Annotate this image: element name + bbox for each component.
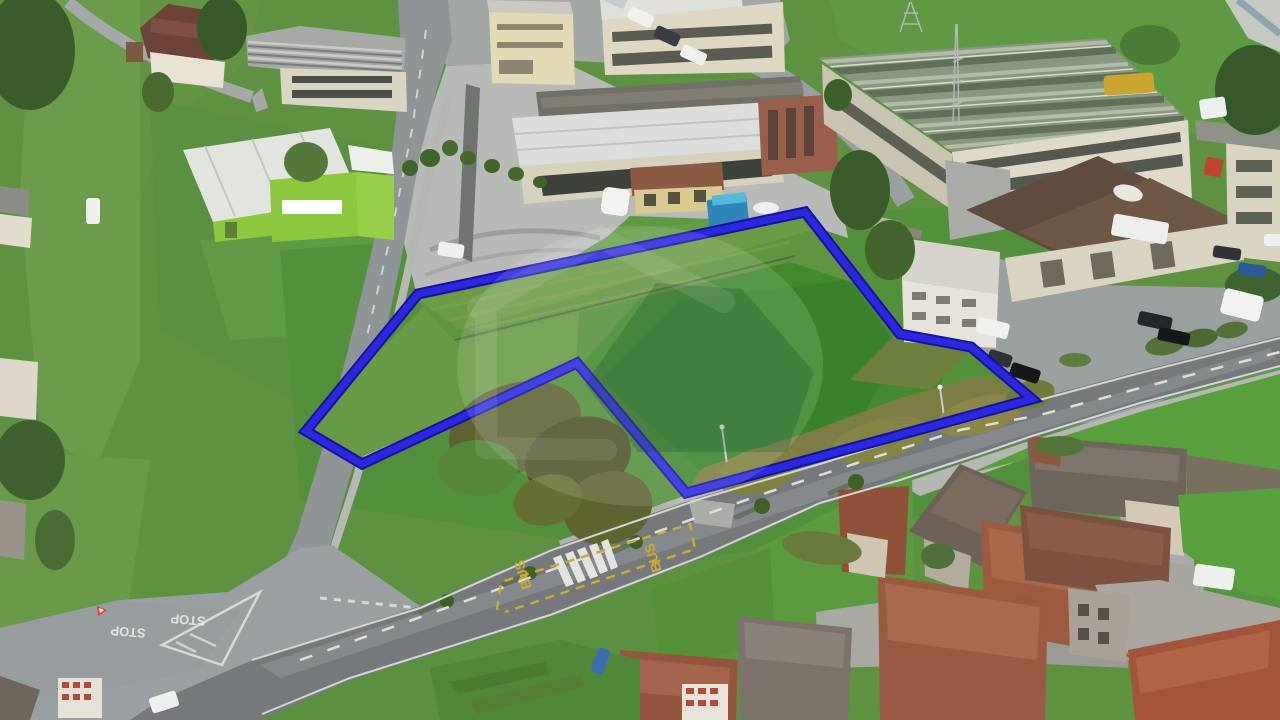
svg-text:STOP: STOP xyxy=(110,623,147,641)
svg-text:STOP: STOP xyxy=(170,611,207,629)
